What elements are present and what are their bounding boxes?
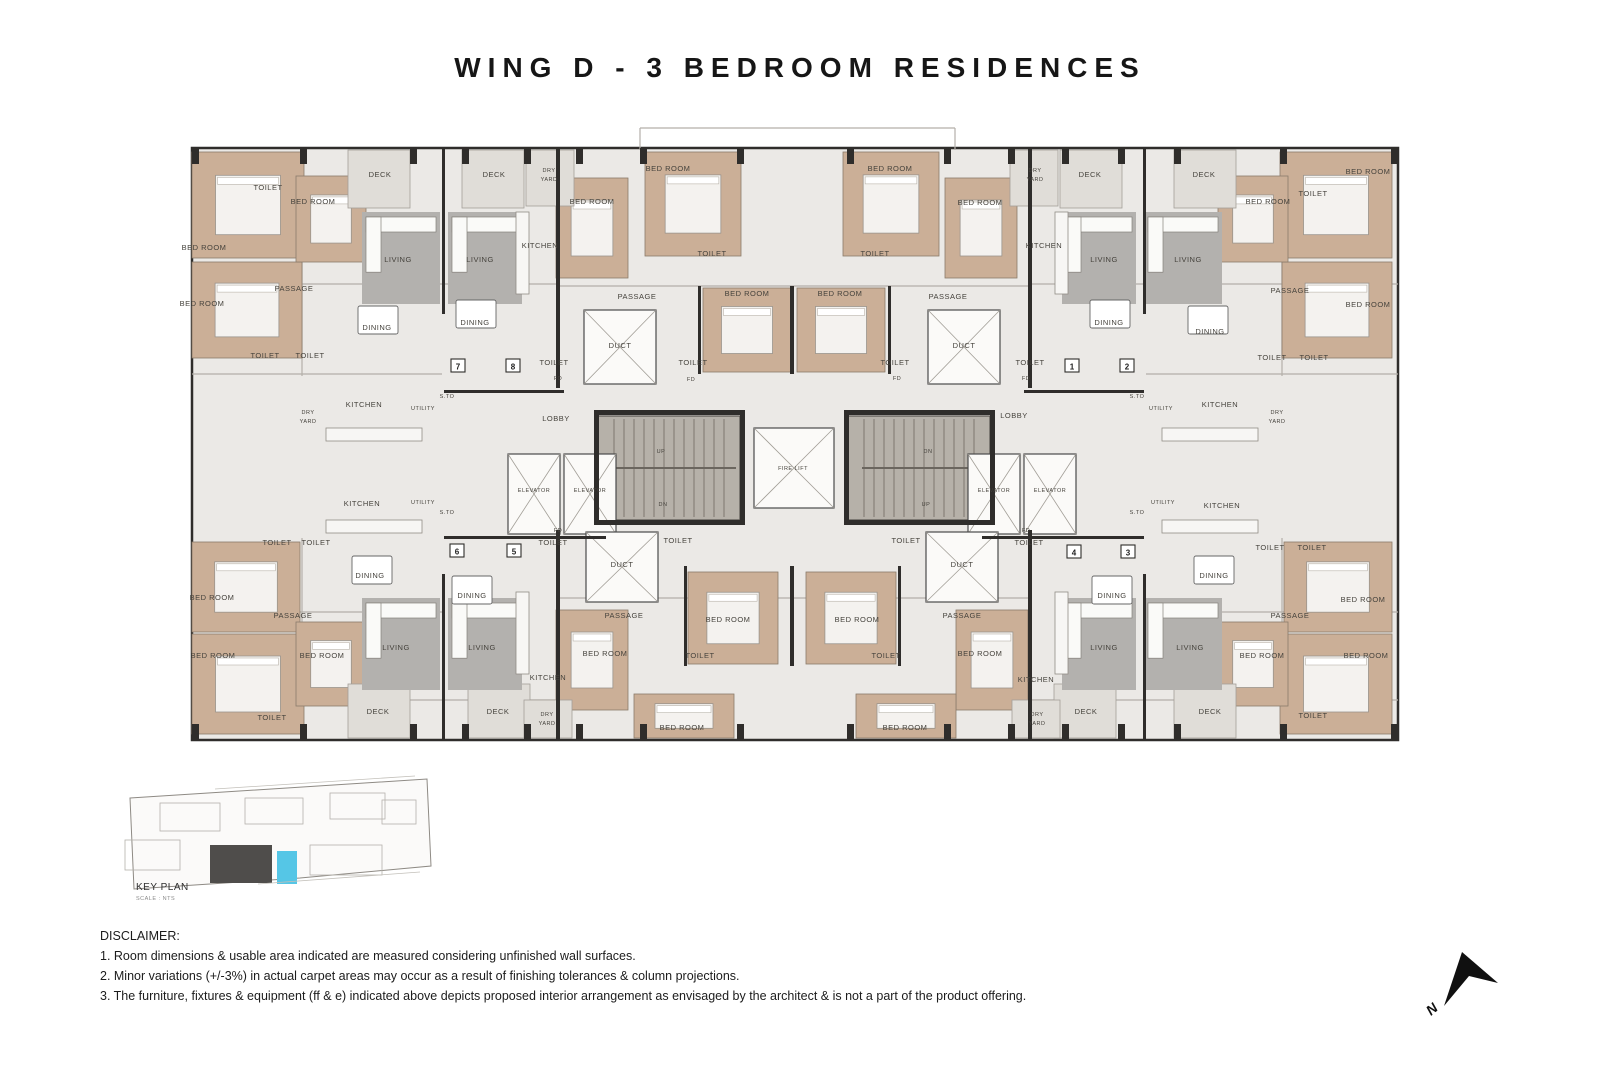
room-label: UTILITY [411, 406, 435, 412]
room-label: BED ROOM [1344, 651, 1389, 660]
wall-segment [556, 148, 560, 388]
disclaimer-line: 2. Minor variations (+/-3%) in actual ca… [100, 966, 1026, 986]
room-deck [524, 700, 572, 738]
room-label: TOILET [1255, 543, 1284, 552]
sofa [452, 217, 467, 272]
room-label: BED ROOM [818, 289, 863, 298]
unit-number: 6 [455, 548, 460, 557]
key-plan-scale: SCALE : NTS [136, 896, 175, 902]
north-letter: N [1423, 999, 1442, 1018]
room-label: DECK [1199, 707, 1222, 716]
room-label: TOILET [685, 651, 714, 660]
wall-segment [844, 410, 849, 525]
room-label: DINING [1199, 571, 1228, 580]
bed-pillow [709, 594, 757, 601]
wall-segment [444, 390, 564, 393]
room-label: TOILET [250, 351, 279, 360]
room-label: BED ROOM [190, 593, 235, 602]
room-label: BED ROOM [583, 649, 628, 658]
unit-number: 7 [456, 363, 461, 372]
room-label: LIVING [384, 255, 412, 264]
room-label: KITCHEN [1204, 501, 1240, 510]
room-label: FIRE LIFT [778, 466, 808, 472]
room-label: FD [893, 376, 901, 382]
room-label: DINING [460, 318, 489, 327]
room-deck [1174, 150, 1236, 208]
sofa [366, 603, 381, 658]
room-label: DUCT [951, 560, 974, 569]
room-label: LIVING [1176, 643, 1204, 652]
room-label: PASSAGE [274, 611, 313, 620]
bed-pillow [865, 177, 917, 184]
bed-pillow [667, 177, 719, 184]
room-label: TOILET [1014, 538, 1043, 547]
room-label: DECK [1079, 170, 1102, 179]
wall-segment [192, 724, 199, 740]
wall-segment [576, 724, 583, 740]
room-label: DECK [1193, 170, 1216, 179]
room-label: BED ROOM [1246, 197, 1291, 206]
room-label: BED ROOM [958, 649, 1003, 658]
room-label: PASSAGE [1271, 286, 1310, 295]
room-label: BED ROOM [725, 289, 770, 298]
wall-segment [594, 410, 745, 415]
room-label: DECK [367, 707, 390, 716]
wall-segment [982, 536, 1144, 539]
bed-pillow [879, 706, 933, 713]
unit-number: 3 [1126, 549, 1131, 558]
wall-segment [737, 724, 744, 740]
wall-segment [410, 148, 417, 164]
room-label: DECK [483, 170, 506, 179]
room-label: DUCT [609, 341, 632, 350]
room-label: DRY [1030, 712, 1043, 718]
room-label: YARD [1269, 419, 1286, 425]
bed-pillow [827, 594, 875, 601]
wall-segment [1008, 724, 1015, 740]
bed-pillow [217, 285, 277, 292]
wall-segment [944, 148, 951, 164]
wall-segment [1008, 148, 1015, 164]
wall-segment [1174, 148, 1181, 164]
sofa [1148, 603, 1163, 658]
wall-segment [844, 410, 995, 415]
room-label: LIVING [382, 643, 410, 652]
wall-segment [1143, 148, 1146, 314]
kitchen-counter [1162, 428, 1258, 441]
room-deck [1012, 700, 1060, 738]
room-label: UTILITY [411, 500, 435, 506]
wall-segment [1028, 530, 1032, 740]
wall-segment [1143, 574, 1146, 740]
room-label: LOBBY [1000, 411, 1028, 420]
room-label: DECK [487, 707, 510, 716]
wall-segment [847, 148, 854, 164]
wall-segment [790, 566, 794, 666]
wall-segment [1280, 148, 1287, 164]
wall-segment [1118, 724, 1125, 740]
room-label: S.TO [1130, 510, 1145, 516]
room-label: YARD [300, 419, 317, 425]
page: WING D - 3 BEDROOM RESIDENCES BED ROOMTO… [0, 0, 1600, 1080]
room-label: FD [1022, 376, 1030, 382]
room-label: LIVING [1090, 255, 1118, 264]
room-label: YARD [1029, 721, 1046, 727]
room-label: TOILET [262, 538, 291, 547]
floor-plan-svg: BED ROOMTOILETBED ROOMBED ROOMDECKDECKDR… [0, 0, 1600, 1080]
wall-segment [442, 574, 445, 740]
room-label: ELEVATOR [978, 488, 1010, 494]
wall-segment [594, 520, 745, 525]
room-label: TOILET [295, 351, 324, 360]
north-arrow-icon: N [1395, 930, 1525, 1050]
room-label: PASSAGE [618, 292, 657, 301]
wall-segment [1174, 724, 1181, 740]
wall-segment [1280, 724, 1287, 740]
room-label: DUCT [611, 560, 634, 569]
sofa [366, 217, 381, 272]
room-label: TOILET [663, 536, 692, 545]
room-label: PASSAGE [929, 292, 968, 301]
room-label: BED ROOM [1240, 651, 1285, 660]
wall-segment [1118, 148, 1125, 164]
wall-segment [990, 410, 995, 525]
room-label: FD [1022, 528, 1030, 534]
room-label: BED ROOM [1346, 300, 1391, 309]
kitchen-counter [1055, 212, 1068, 294]
kitchen-counter [326, 428, 422, 441]
room-label: TOILET [678, 358, 707, 367]
wall-segment [462, 724, 469, 740]
room-label: DINING [457, 591, 486, 600]
room-label: LIVING [1174, 255, 1202, 264]
room-label: KITCHEN [346, 400, 382, 409]
room-label: TOILET [1015, 358, 1044, 367]
room-label: DN [924, 449, 933, 455]
room-label: DRY [1270, 410, 1283, 416]
kitchen-counter [326, 520, 422, 533]
key-plan-highlighted-wing [210, 845, 272, 883]
room-label: KITCHEN [1202, 400, 1238, 409]
room-label: TOILET [860, 249, 889, 258]
room-label: TOILET [539, 358, 568, 367]
room-label: UP [657, 449, 666, 455]
wall-segment [444, 536, 606, 539]
room-label: BED ROOM [291, 197, 336, 206]
bed-pillow [1235, 642, 1272, 649]
room-label: KITCHEN [1026, 241, 1062, 250]
room-label: DINING [362, 323, 391, 332]
room-label: KITCHEN [344, 499, 380, 508]
room-label: DINING [355, 571, 384, 580]
room-label: FD [687, 377, 695, 383]
wall-segment [462, 148, 469, 164]
room-label: LIVING [1090, 643, 1118, 652]
room-label: TOILET [1298, 189, 1327, 198]
room-label: BED ROOM [300, 651, 345, 660]
wall-segment [847, 724, 854, 740]
room-label: BED ROOM [835, 615, 880, 624]
key-plan-pool [277, 851, 297, 884]
wall-segment [524, 148, 531, 164]
sofa [1148, 217, 1163, 272]
kitchen-counter [1055, 592, 1068, 674]
room-label: DINING [1097, 591, 1126, 600]
room-label: ELEVATOR [1034, 488, 1066, 494]
room-label: S.TO [440, 394, 455, 400]
sofa [452, 603, 467, 658]
room-label: S.TO [440, 510, 455, 516]
room-label: TOILET [257, 713, 286, 722]
room-label: PASSAGE [605, 611, 644, 620]
room-label: BED ROOM [1346, 167, 1391, 176]
room-label: PASSAGE [943, 611, 982, 620]
wall-segment [640, 148, 647, 164]
room-label: UTILITY [1151, 500, 1175, 506]
room-label: UTILITY [1149, 406, 1173, 412]
room-deck [462, 150, 524, 208]
room-label: DUCT [953, 341, 976, 350]
room-label: BED ROOM [570, 197, 615, 206]
wall-segment [410, 724, 417, 740]
room-label: DECK [369, 170, 392, 179]
room-label: DRY [542, 168, 555, 174]
room-label: BED ROOM [646, 164, 691, 173]
wall-segment [442, 148, 445, 314]
kitchen-counter [516, 592, 529, 674]
room-deck [348, 150, 410, 208]
bed-pillow [313, 642, 350, 649]
room-label: DN [659, 502, 668, 508]
room-label: KITCHEN [1018, 675, 1054, 684]
room-label: TOILET [1257, 353, 1286, 362]
room-label: TOILET [301, 538, 330, 547]
wall-segment [300, 148, 307, 164]
wall-segment [944, 724, 951, 740]
unit-number: 2 [1125, 363, 1130, 372]
room-label: BED ROOM [1341, 595, 1386, 604]
room-deck [1060, 150, 1122, 208]
wall-segment [1062, 724, 1069, 740]
room-label: FD [554, 528, 562, 534]
bed-pillow [723, 308, 770, 315]
room-label: ELEVATOR [574, 488, 606, 494]
unit-number: 4 [1072, 549, 1077, 558]
kitchen-counter [1162, 520, 1258, 533]
disclaimer-line: 1. Room dimensions & usable area indicat… [100, 946, 1026, 966]
room-label: TOILET [891, 536, 920, 545]
room-label: YARD [1027, 177, 1044, 183]
wall-segment [524, 724, 531, 740]
room-label: TOILET [871, 651, 900, 660]
room-label: UP [922, 502, 931, 508]
room-label: S.TO [1130, 394, 1145, 400]
room-label: DECK [1075, 707, 1098, 716]
wall-segment [844, 520, 995, 525]
room-label: ELEVATOR [518, 488, 550, 494]
room-label: LIVING [468, 643, 496, 652]
room-label: DRY [301, 410, 314, 416]
bed-pillow [657, 706, 711, 713]
room-label: YARD [539, 721, 556, 727]
room-label: KITCHEN [522, 241, 558, 250]
wall-segment [737, 148, 744, 164]
room-label: PASSAGE [275, 284, 314, 293]
wall-segment [1062, 148, 1069, 164]
bed-pillow [1309, 564, 1368, 571]
wall-segment [740, 410, 745, 525]
unit-number: 1 [1070, 363, 1075, 372]
bed-pillow [1307, 285, 1367, 292]
kitchen-counter [516, 212, 529, 294]
wall-segment [1024, 390, 1144, 393]
room-label: TOILET [253, 183, 282, 192]
room-label: PASSAGE [1271, 611, 1310, 620]
room-label: TOILET [697, 249, 726, 258]
room-label: LOBBY [542, 414, 570, 423]
room-label: TOILET [1298, 711, 1327, 720]
room-label: DINING [1094, 318, 1123, 327]
room-label: DINING [1195, 327, 1224, 336]
bed-pillow [1306, 177, 1367, 184]
wall-segment [300, 724, 307, 740]
room-label: BED ROOM [180, 299, 225, 308]
wall-segment [640, 724, 647, 740]
room-label: BED ROOM [883, 723, 928, 732]
room-label: FD [554, 376, 562, 382]
wall-segment [1391, 148, 1398, 164]
room-label: BED ROOM [958, 198, 1003, 207]
disclaimer-heading: DISCLAIMER: [100, 926, 1026, 946]
room-label: TOILET [1297, 543, 1326, 552]
room-label: BED ROOM [706, 615, 751, 624]
room-label: BED ROOM [182, 243, 227, 252]
room-label: LIVING [466, 255, 494, 264]
room-label: YARD [541, 177, 558, 183]
room-label: DRY [1028, 168, 1041, 174]
room-label: BED ROOM [868, 164, 913, 173]
key-plan-label: KEY PLAN [136, 882, 189, 893]
wall-segment [556, 530, 560, 740]
bed-pillow [817, 308, 864, 315]
wall-segment [192, 148, 199, 164]
wall-segment [790, 286, 794, 374]
wall-segment [1028, 148, 1032, 388]
bed-pillow [217, 564, 276, 571]
room-label: KITCHEN [530, 673, 566, 682]
room-label: BED ROOM [660, 723, 705, 732]
wall-segment [1391, 724, 1398, 740]
room-label: BED ROOM [191, 651, 236, 660]
bed-pillow [573, 634, 611, 641]
wall-segment [576, 148, 583, 164]
unit-number: 8 [511, 363, 516, 372]
wall-segment [594, 410, 599, 525]
room-label: TOILET [880, 358, 909, 367]
disclaimer-line: 3. The furniture, fixtures & equipment (… [100, 986, 1026, 1006]
room-label: TOILET [538, 538, 567, 547]
bed-pillow [973, 634, 1011, 641]
room-label: DRY [540, 712, 553, 718]
unit-number: 5 [512, 548, 517, 557]
disclaimer-block: DISCLAIMER: 1. Room dimensions & usable … [100, 926, 1026, 1006]
room-label: TOILET [1299, 353, 1328, 362]
